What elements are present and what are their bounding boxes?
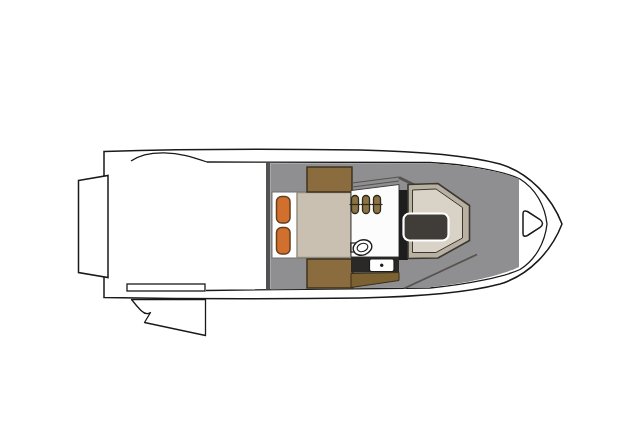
transom-door-frame xyxy=(127,284,205,291)
swim-platform xyxy=(79,176,109,278)
storage-cabinet-bottom xyxy=(307,259,353,288)
stools xyxy=(350,196,383,214)
pillow xyxy=(277,228,291,255)
stove-burner xyxy=(380,264,383,267)
transom-door-swing xyxy=(132,300,206,336)
pillow xyxy=(277,197,291,224)
boat-floorplan-canvas xyxy=(0,0,637,425)
storage-cabinet-top xyxy=(307,167,352,192)
boat-floorplan xyxy=(0,0,637,425)
mattress xyxy=(297,193,351,258)
cabin-bulkhead xyxy=(266,163,271,290)
dinette-table xyxy=(404,214,449,241)
